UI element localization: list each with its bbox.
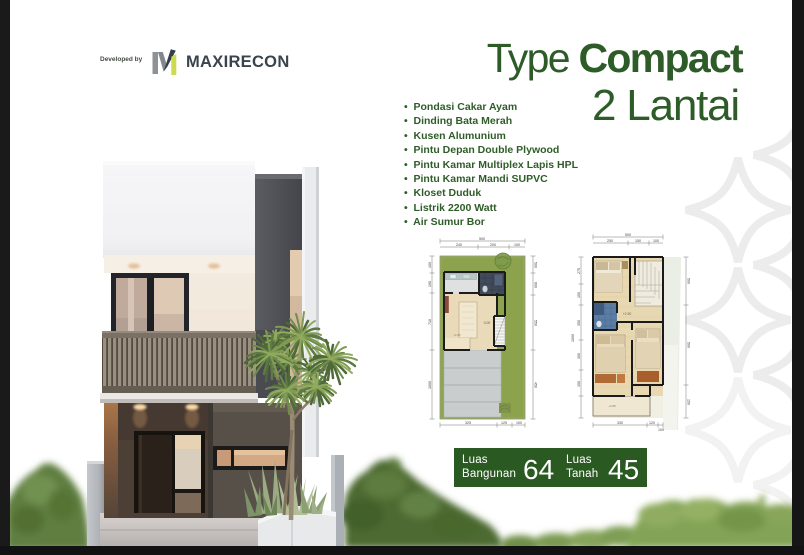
svg-text:350: 350 — [577, 320, 581, 326]
svg-text:+2.85: +2.85 — [608, 404, 616, 408]
svg-text:-0.05: -0.05 — [454, 333, 461, 337]
svg-text:+2.90: +2.90 — [623, 312, 632, 316]
svg-text:500: 500 — [479, 237, 485, 241]
svg-text:100: 100 — [653, 239, 659, 243]
svg-text:100: 100 — [428, 262, 432, 268]
svg-text:325: 325 — [465, 421, 471, 425]
svg-text:1000: 1000 — [428, 381, 432, 389]
svg-text:150: 150 — [635, 239, 641, 243]
svg-text:0.00: 0.00 — [484, 321, 491, 325]
svg-text:100: 100 — [514, 243, 520, 247]
svg-text:1000: 1000 — [571, 334, 575, 342]
svg-text:500: 500 — [686, 278, 690, 284]
svg-text:330: 330 — [617, 421, 623, 425]
svg-text:240: 240 — [456, 243, 462, 247]
svg-text:500: 500 — [686, 342, 690, 348]
svg-text:100: 100 — [516, 421, 522, 425]
svg-text:100: 100 — [658, 428, 664, 432]
svg-text:150: 150 — [686, 399, 690, 405]
svg-text:600: 600 — [533, 282, 537, 288]
svg-text:710: 710 — [428, 319, 432, 325]
svg-text:500: 500 — [533, 262, 537, 268]
svg-text:500: 500 — [625, 233, 631, 237]
svg-text:120: 120 — [649, 421, 655, 425]
svg-text:190: 190 — [428, 281, 432, 287]
svg-text:275: 275 — [577, 268, 581, 274]
svg-text:550: 550 — [533, 320, 537, 326]
svg-text:150: 150 — [577, 292, 581, 298]
svg-text:450: 450 — [533, 382, 537, 388]
svg-text:250: 250 — [607, 239, 613, 243]
svg-text:200: 200 — [490, 243, 496, 247]
svg-text:300: 300 — [577, 353, 581, 359]
svg-text:150: 150 — [577, 381, 581, 387]
svg-text:125: 125 — [501, 421, 507, 425]
